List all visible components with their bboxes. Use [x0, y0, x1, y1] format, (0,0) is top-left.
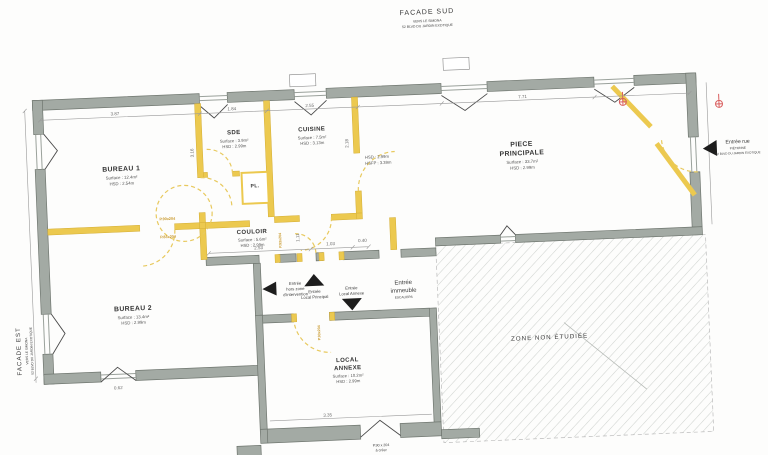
- dim-top-2: 1.84: [227, 106, 236, 111]
- door-label-4: P.93x204: [317, 325, 322, 340]
- room-piece-principale: PIECE PRINCIPALE Surface : 33.7m² HSD : …: [499, 140, 545, 171]
- room-hsd: HSD : 2.99m: [222, 143, 247, 149]
- arrow-left-icon: [262, 282, 277, 297]
- right-wall: [686, 73, 702, 227]
- dim-top-1: 3.87: [110, 111, 119, 116]
- yellow-diagonal-2: [657, 142, 695, 196]
- bottom-door-label-2: à créer: [376, 448, 388, 452]
- yellow-diagonal-1: [612, 85, 651, 129]
- facade-sud-title: FACADE SUD: [399, 8, 454, 17]
- bottom-left-wall: [44, 365, 264, 384]
- room-bureau2: BUREAU 2 Surface : 13.4m² HSD : 2.99m: [114, 305, 153, 326]
- dim-top-3: 2.55: [305, 103, 314, 108]
- dim-annexe: 3.35: [323, 412, 332, 417]
- facade-sud-sub2: 52 BLVD DU JARDIN EXOTIQUE: [402, 23, 454, 29]
- entry-immeuble: Entrée immeuble ESCALIERS: [390, 280, 417, 300]
- closet-label: PL.: [250, 183, 259, 189]
- arrow-down-icon: [342, 298, 362, 311]
- room-sde: SDE Surface : 3.9m² HSD : 2.99m: [219, 130, 249, 150]
- entry-label-line1: Entrée: [394, 280, 413, 287]
- entry-label-line2: Local Annexe: [339, 290, 365, 296]
- entree-rue-title: Entrée rue: [725, 139, 750, 146]
- floor-plan-canvas: 3.87 1.84 2.55 7.71 2.53 1.03 0.40 3.35 …: [0, 0, 768, 455]
- room-hsd: HSD : 2.99m: [240, 242, 265, 248]
- entree-rue: Entrée rue PIÉTONNE 52 BLVD DU JARDIN EX…: [703, 138, 761, 156]
- room-name: SDE: [227, 130, 241, 137]
- facade-sud-label: FACADE SUD VERS LE SIMONA 52 BLVD DU JAR…: [399, 8, 454, 29]
- room-bureau1: BUREAU 1 Surface : 12.4m² HSD : 2.54m: [102, 165, 141, 187]
- room-name-line1: LOCAL: [336, 357, 359, 364]
- entree-rue-sub1: PIÉTONNE: [730, 145, 746, 151]
- dim-top-4: 7.71: [518, 94, 527, 99]
- room-local-annexe: LOCAL ANNEXE Surface : 10.2m² HSD : 2.99…: [332, 357, 365, 384]
- dim-couloir-2: 1.03: [326, 241, 335, 246]
- top-wall: [32, 73, 696, 111]
- room-hsd: HSD : 2.54m: [109, 180, 134, 186]
- door-label-1: P.90x204: [159, 217, 176, 222]
- room-couloir: COULOIR Surface : 5.6m² HSD : 2.99m: [237, 229, 268, 248]
- annexe-door-v: [360, 419, 401, 437]
- dim-couloir-3: 0.40: [358, 238, 367, 243]
- bottom-door-label-1: P.90 x 204: [373, 443, 390, 448]
- dim-v2: 2.18: [344, 139, 349, 148]
- wall-tag-box: [289, 74, 315, 87]
- arrow-up-icon: [304, 274, 324, 287]
- height-note-line1: HSD : 2.99m: [365, 154, 390, 160]
- dim-v1: 3.16: [189, 148, 194, 157]
- dim-v3: 1.11: [295, 233, 300, 242]
- entry-local-annexe: Entrée Local Annexe: [339, 285, 366, 311]
- room-hsd: HSD : 2.99m: [121, 320, 146, 326]
- vestibule-left-wall: [253, 263, 262, 315]
- dim-left: 0.62: [114, 385, 123, 390]
- floor-plan-drawing: 3.87 1.84 2.55 7.71 2.53 1.03 0.40 3.35 …: [0, 0, 768, 455]
- room-name: BUREAU 2: [114, 305, 152, 314]
- plumbing-symbol-2: [715, 94, 723, 108]
- room-name-line1: PIECE: [510, 141, 533, 149]
- room-name-line2: PRINCIPALE: [499, 149, 544, 158]
- room-hsd: HSD : 2.99m: [336, 378, 361, 384]
- room-name: COULOIR: [237, 229, 268, 236]
- entree-rue-sub2: 52 BLVD DU JARDIN EXOTIQUE: [716, 150, 761, 156]
- room-name: BUREAU 1: [102, 165, 140, 174]
- room-name: CUISINE: [298, 126, 325, 133]
- entry-label-sub: ESCALIERS: [395, 295, 413, 300]
- room-cuisine: CUISINE Surface : 7.5m² HSD : 3.13m: [297, 126, 327, 146]
- entry-label-line2: Local Principal: [301, 294, 328, 300]
- room-name-line2: ANNEXE: [334, 365, 362, 372]
- yellow-partitions: [43, 96, 400, 332]
- entry-label-line2: immeuble: [390, 288, 417, 295]
- wall-tag-box: [443, 57, 469, 70]
- room-hsd: HSD : 3.13m: [300, 140, 325, 146]
- facade-est-title: FACADE EST: [15, 327, 24, 376]
- door-label-2: P.83x204: [160, 235, 177, 240]
- door-label-3: P.93x204: [278, 233, 283, 248]
- height-note-line2: HSFP : 3.39m: [365, 160, 392, 166]
- height-note: HSD : 2.99m HSFP : 3.39m: [365, 154, 392, 166]
- room-hsd: HSD : 2.99m: [510, 165, 535, 171]
- facade-est-label: FACADE EST VERS LE SIMONA 52 BLVD DU JAR…: [15, 327, 35, 376]
